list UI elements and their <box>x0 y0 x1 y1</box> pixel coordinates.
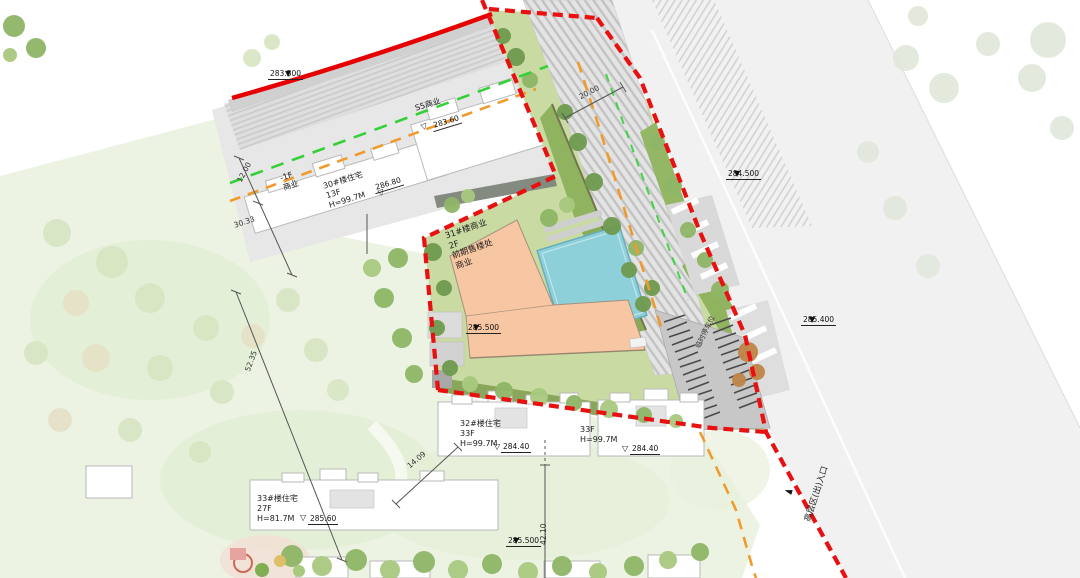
site-plan-canvas: 283.500 ▼ S5商业 283.60 ▽ -1F 商业 30#楼住宅 13… <box>0 0 1080 578</box>
elevation-b33f: 284.40 <box>630 436 660 455</box>
elevation-marker-filled: ▼ <box>809 316 815 324</box>
elevation-road-right-upper: 284.500 <box>726 161 761 180</box>
elevation-marker-open: ▽ <box>494 443 500 451</box>
building-33f-label: 33F H=99.7M <box>580 425 617 445</box>
elevation-marker-filled: ▼ <box>734 170 740 178</box>
dim-label-42-10: 42.10 <box>540 524 548 545</box>
elevation-marker-filled: ▼ <box>285 70 291 78</box>
elevation-marker-open: ▽ <box>622 445 628 453</box>
plan-graphics <box>0 0 1080 578</box>
elevation-road-right-lower: 285.400 <box>801 307 836 326</box>
elevation-marker-open: ▽ <box>300 514 306 522</box>
elevation-b33: 285.60 <box>308 506 338 525</box>
elevation-marker-filled: ▼ <box>473 324 479 332</box>
elevation-marker-filled: ▼ <box>513 537 519 545</box>
elevation-site-south: 285.500 <box>506 528 541 547</box>
building-33-label: 33#楼住宅 27F H=81.7M <box>257 494 298 524</box>
elevation-b31: 285.500 <box>466 315 501 334</box>
elevation-b32: 284.40 <box>501 434 531 453</box>
